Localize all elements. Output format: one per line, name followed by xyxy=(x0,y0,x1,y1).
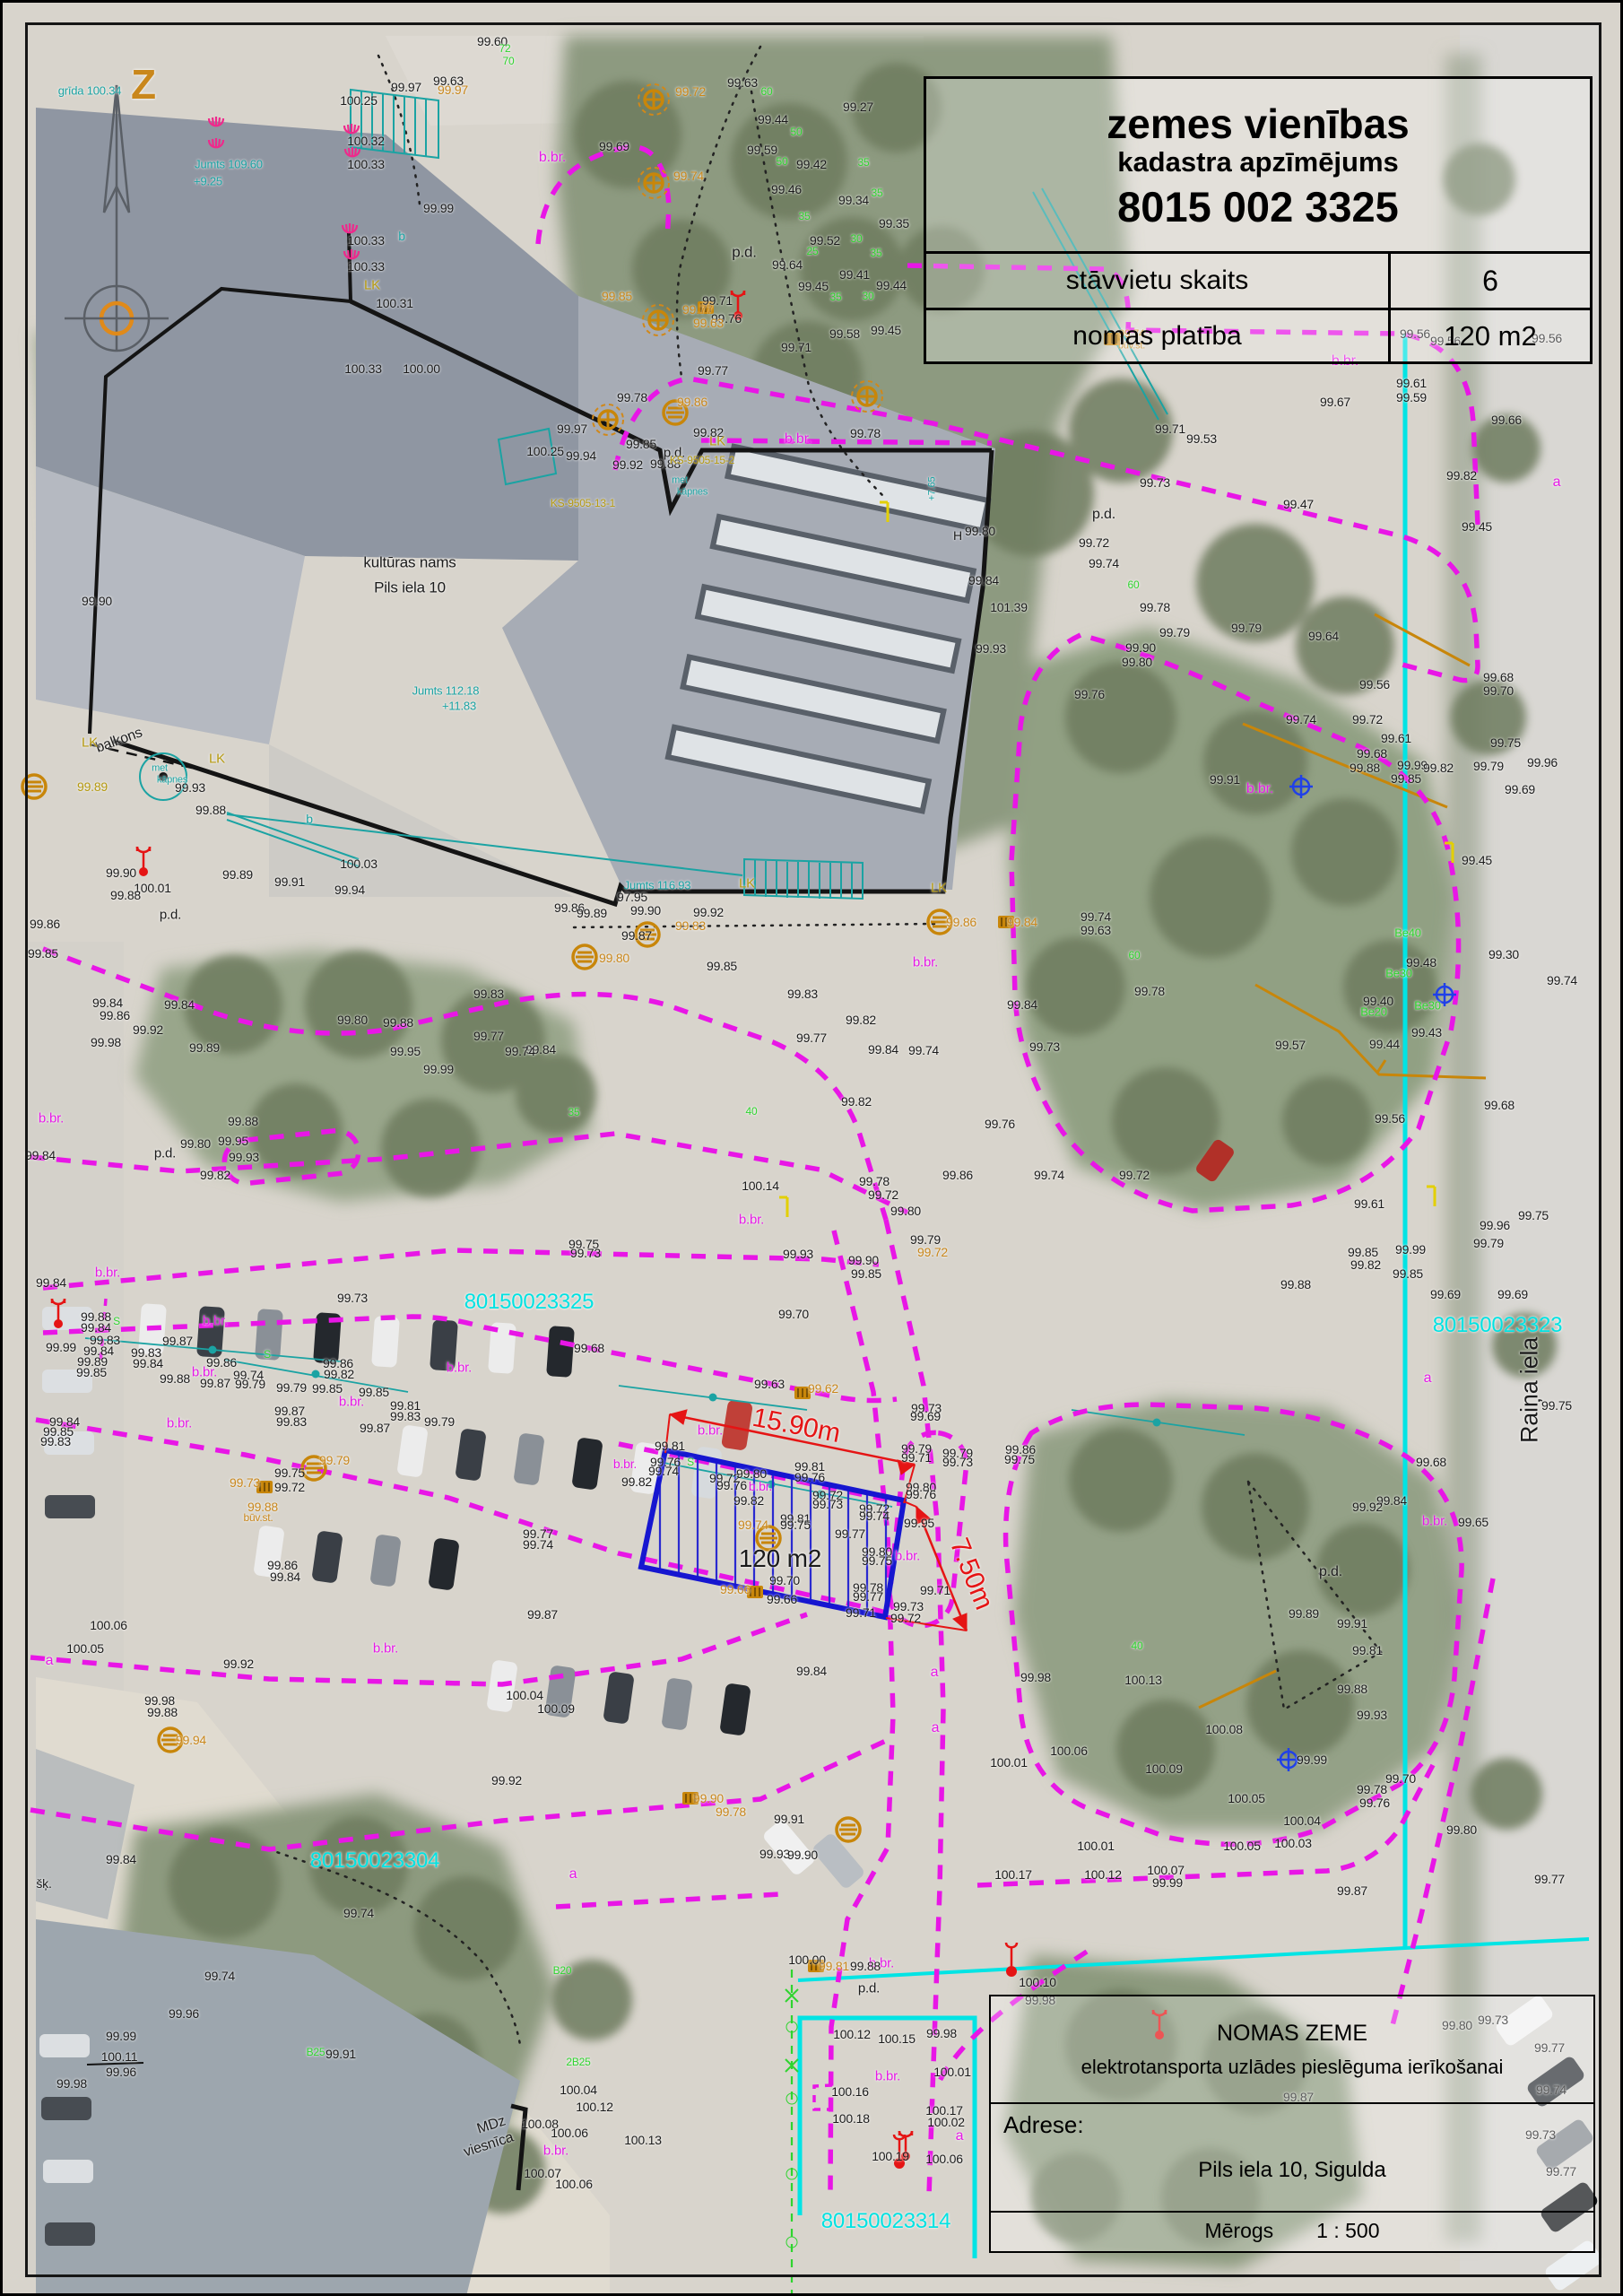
sym-lamp xyxy=(779,1197,787,1217)
title-cadastre-number: 8015 002 3325 xyxy=(1117,182,1399,231)
info-scale-label: Mērogs xyxy=(1204,2219,1273,2243)
sym-sv xyxy=(638,84,669,115)
sym-geo xyxy=(1289,775,1313,798)
sym-mh xyxy=(22,775,46,798)
sym-mh xyxy=(757,1526,780,1550)
row-parking-value: 6 xyxy=(1388,254,1590,308)
sym-box xyxy=(808,1960,824,1972)
info-title: NOMAS ZEME xyxy=(1217,2021,1367,2047)
sym-mh xyxy=(573,945,596,969)
row-area-value: 120 m2 xyxy=(1388,310,1590,361)
title-line1: zemes vienības xyxy=(1107,100,1410,148)
sym-mh xyxy=(837,1818,860,1841)
sym-mh xyxy=(664,401,687,424)
orange-fence-lines xyxy=(1199,614,1486,1708)
dimension-lines xyxy=(665,1410,967,1631)
sym-sv xyxy=(638,168,669,198)
title-line2: kadastra apzīmējums xyxy=(1117,146,1399,178)
info-address-label: Adrese: xyxy=(1003,2111,1084,2139)
row-area-label: nomas platība xyxy=(926,310,1388,361)
sym-geo xyxy=(1277,1748,1300,1771)
sym-box xyxy=(698,301,714,314)
sym-box xyxy=(998,916,1014,928)
sym-hy xyxy=(137,847,150,876)
sym-lamp xyxy=(880,502,888,522)
sym-st xyxy=(209,117,223,126)
boundary-lines xyxy=(30,147,1493,2196)
sym-st xyxy=(344,124,359,134)
sym-lamp xyxy=(1427,1187,1435,1206)
cadastral-map-page: grīda 100.34ZJumts 109.60+9.2599.9799.97… xyxy=(0,0,1623,2296)
sym-mh xyxy=(928,910,951,934)
row-parking-label: stāvvietu skaits xyxy=(926,254,1388,308)
sym-st xyxy=(344,249,359,259)
info-subtitle: elektrotansporta uzlādes pieslēguma ierī… xyxy=(1081,2056,1504,2079)
sym-sv xyxy=(643,305,673,335)
info-address: Pils iela 10, Sigulda xyxy=(991,2158,1593,2183)
sym-hy xyxy=(52,1299,65,1328)
sym-box xyxy=(256,1481,273,1493)
sym-rc xyxy=(894,2135,905,2169)
sym-box xyxy=(794,1387,811,1399)
building-outline xyxy=(87,233,992,2190)
north-arrow xyxy=(65,85,169,351)
sym-mh xyxy=(302,1457,325,1480)
green-utility-line xyxy=(785,1970,798,2294)
sym-hy xyxy=(732,291,744,320)
sym-mh xyxy=(159,1728,182,1752)
sym-sv xyxy=(852,381,882,412)
title-block: zemes vienības kadastra apzīmējums 8015 … xyxy=(924,76,1593,364)
cyan-utility-lines xyxy=(798,334,1589,2258)
sym-st xyxy=(209,138,223,148)
sym-st xyxy=(343,223,357,233)
info-block: NOMAS ZEME elektrotansporta uzlādes pies… xyxy=(989,1995,1595,2253)
map-symbols-layer xyxy=(22,84,1456,2169)
sym-box xyxy=(747,1586,763,1598)
sym-box xyxy=(682,1792,699,1805)
info-scale-value: 1 : 500 xyxy=(1316,2219,1379,2243)
sym-rc xyxy=(1006,1943,1017,1977)
